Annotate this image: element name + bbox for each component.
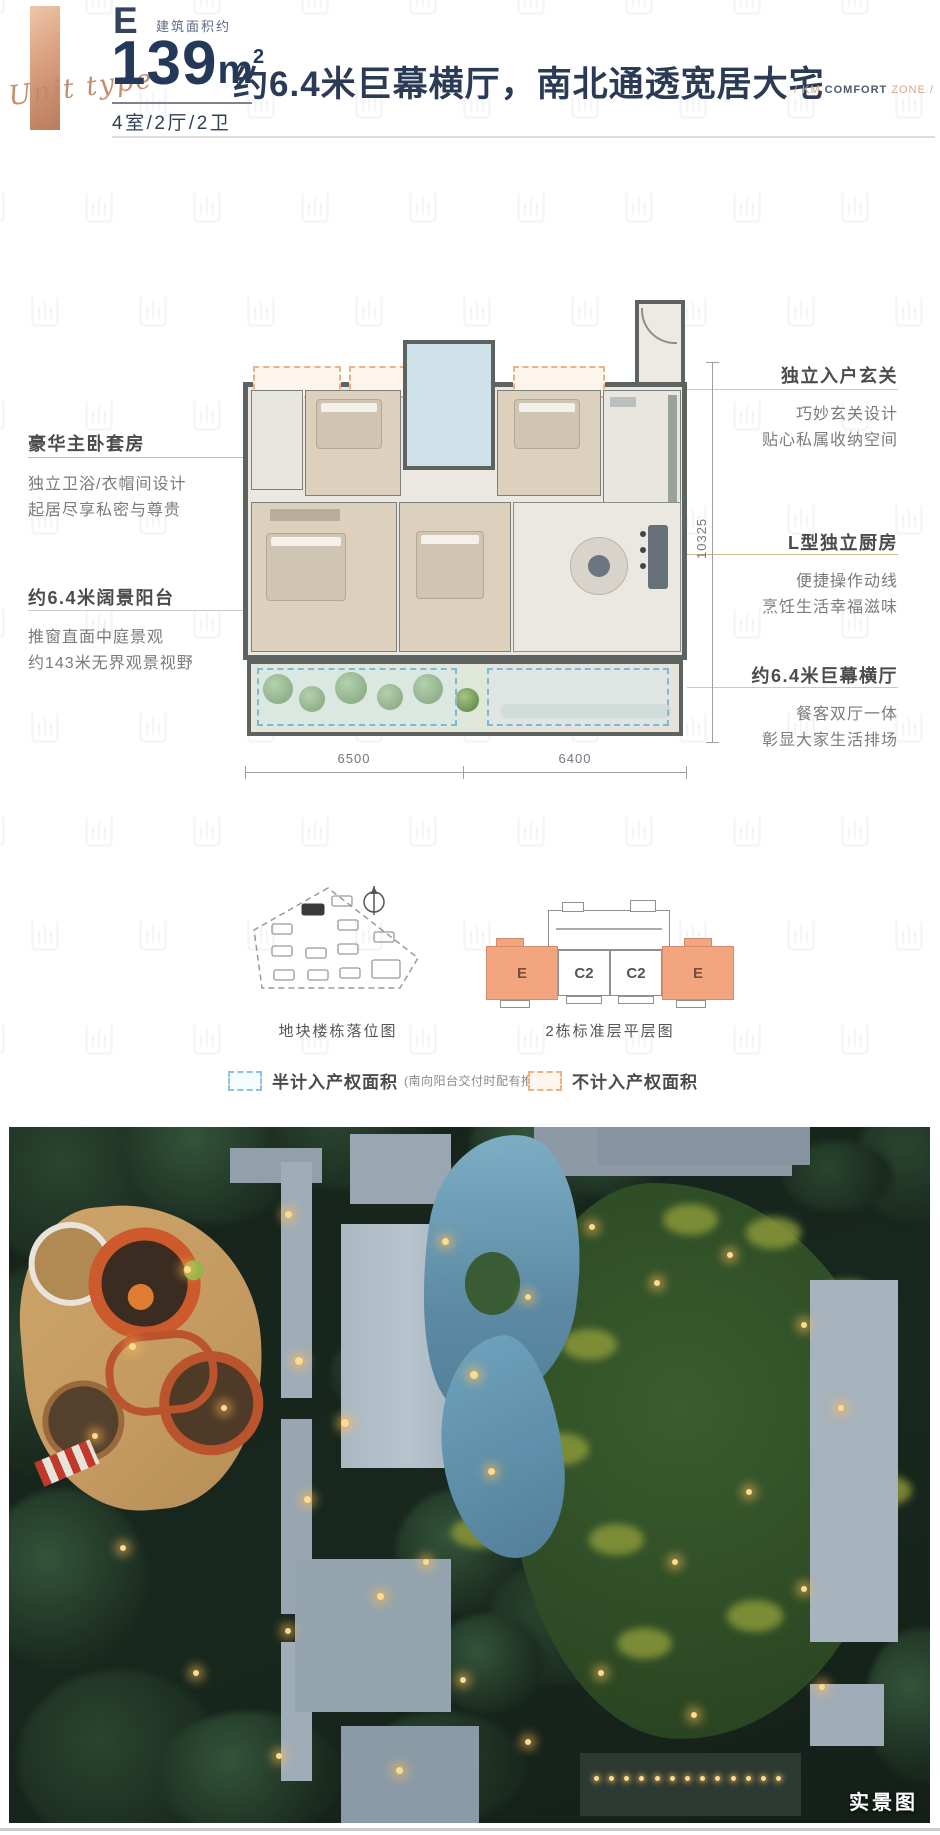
annotation-living-hall: 约6.4米巨幕横厅 餐客双厅一体 彰显大家生活排场: [668, 662, 898, 754]
room-bedroom-3: [497, 390, 601, 496]
unit-label: E: [517, 965, 527, 982]
logo-glyph: [0, 188, 12, 230]
logo-glyph: [888, 916, 930, 958]
unit-cell-C2-left: C2: [558, 950, 610, 996]
bottom-rule: [0, 1828, 940, 1831]
logo-glyph: [0, 812, 12, 854]
annotation-line: 餐客双厅一体: [668, 702, 898, 728]
room-bathroom: [251, 390, 303, 490]
logo-glyph: [0, 604, 12, 646]
dimension-width-left: 6500: [304, 751, 404, 766]
tagline-mid: COMFORT: [825, 84, 888, 96]
logo-glyph: [780, 292, 822, 334]
logo-glyph: [510, 188, 552, 230]
dimension-tick: [245, 766, 246, 779]
unit-balcony: [618, 996, 654, 1004]
garden-light: [304, 1496, 311, 1503]
garden-light: [525, 1294, 531, 1300]
lit-window: [746, 1776, 751, 1781]
logo-glyph: [510, 0, 552, 22]
annotation-title: 约6.4米阔景阳台: [28, 584, 194, 610]
lit-window: [594, 1776, 599, 1781]
annotation-line: 起居尽享私密与尊贵: [28, 498, 186, 524]
dimension-height: 10325: [694, 498, 710, 578]
unit-balcony: [676, 1000, 706, 1008]
roof: [598, 1127, 810, 1165]
tree-canopy: [9, 1489, 147, 1670]
logo-glyph: [402, 812, 444, 854]
lit-window: [761, 1776, 766, 1781]
hedge: [663, 1204, 718, 1235]
tagline-right: ZONE /: [887, 84, 934, 96]
logo-glyph: [402, 0, 444, 22]
logo-glyph: [618, 812, 660, 854]
garden-light: [488, 1468, 495, 1475]
rooms-spec: 4室/2厅/2卫: [112, 108, 231, 135]
annotation-title: L型独立厨房: [678, 529, 898, 555]
garden-light: [654, 1280, 660, 1286]
annotation-master-suite: 豪华主卧套房 独立卫浴/衣帽间设计 起居尽享私密与尊贵: [28, 430, 186, 524]
dimension-line-bottom: [245, 772, 687, 773]
core-bump: [630, 900, 656, 912]
plaza: [295, 1559, 452, 1712]
unit-label: E: [693, 965, 703, 982]
hedge: [589, 1524, 644, 1555]
legend-label: 半计入产权面积: [272, 1068, 398, 1093]
garden-light: [801, 1322, 807, 1328]
garden-light: [129, 1343, 136, 1350]
logo-glyph: [24, 708, 66, 750]
logo-glyph: [78, 188, 120, 230]
logo-glyph: [132, 916, 174, 958]
logo-glyph: [834, 188, 876, 230]
dimension-tick: [706, 742, 719, 743]
tree-canopy: [156, 1712, 340, 1823]
standard-floor-diagram: E C2 C2 E: [470, 900, 750, 1020]
logo-glyph: [132, 292, 174, 334]
pool-island: [465, 1252, 520, 1315]
annotation-kitchen: L型独立厨房 便捷操作动线 烹饪生活幸福滋味: [678, 529, 898, 621]
half-counted-area-dashed: [257, 668, 457, 726]
garden-light: [525, 1739, 531, 1745]
garden-light: [285, 1211, 292, 1218]
core-outline: [548, 910, 670, 950]
annotation-line: 烹饪生活幸福滋味: [678, 595, 898, 621]
dimension-tick: [686, 766, 687, 779]
logo-glyph: [78, 1020, 120, 1062]
annotation-title: 豪华主卧套房: [28, 430, 186, 456]
core-line: [556, 928, 662, 930]
garden-light: [672, 1559, 678, 1565]
logo-glyph: [24, 916, 66, 958]
room-master-bedroom: [251, 502, 397, 652]
annotation-title: 独立入户玄关: [678, 362, 898, 388]
unit-balcony: [566, 996, 602, 1004]
logo-glyph: [402, 188, 444, 230]
north-compass-icon: [360, 884, 388, 918]
logo-glyph: [726, 812, 768, 854]
lit-window: [655, 1776, 660, 1781]
main-title: 约6.4米巨幕横厅，南北通透宽居大宅: [233, 56, 825, 107]
unit-label: C2: [574, 965, 593, 982]
playground: [10, 1194, 275, 1520]
logo-glyph: [834, 812, 876, 854]
deck-right: [810, 1280, 897, 1642]
logo-glyph: [726, 0, 768, 22]
legend-swatch-orange: [528, 1071, 562, 1091]
plot-map-caption: 地块楼栋落位图: [253, 1020, 423, 1041]
photo-caption: 实景图: [849, 1786, 918, 1815]
roof: [350, 1134, 451, 1204]
logo-glyph: [0, 1020, 12, 1062]
dimension-line-right: [712, 362, 713, 742]
room-bedroom-4: [399, 502, 511, 652]
terrace: [341, 1726, 479, 1823]
highlighted-building: [302, 904, 324, 915]
core-bump: [562, 902, 584, 912]
logo-glyph: [780, 916, 822, 958]
half-counted-area-dashed: [487, 668, 669, 726]
annotation-balcony: 约6.4米阔景阳台 推窗直面中庭景观 约143米无界观景视野: [28, 584, 194, 677]
unit-cell-E-left: E: [486, 946, 558, 1000]
hedge: [562, 1329, 617, 1360]
lit-window: [670, 1776, 675, 1781]
dimension-tick: [463, 766, 464, 779]
garden-light: [423, 1559, 429, 1565]
floorplan-drawing: [243, 296, 687, 748]
stair-core: [403, 340, 495, 470]
unit-cell-E-right: E: [662, 946, 734, 1000]
annotation-foyer: 独立入户玄关 巧妙玄关设计 贴心私属收纳空间: [678, 362, 898, 454]
lit-window: [624, 1776, 629, 1781]
logo-glyph: [294, 188, 336, 230]
garden-light: [120, 1545, 126, 1551]
garden-light: [295, 1357, 303, 1365]
unit-cell-C2-right: C2: [610, 950, 662, 996]
plot-location-map: [250, 882, 425, 1017]
garden-light: [193, 1670, 199, 1676]
logo-glyph: [726, 1020, 768, 1062]
legend-swatch-blue: [228, 1071, 262, 1091]
logo-glyph: [186, 188, 228, 230]
logo-glyph: [186, 396, 228, 438]
logo-glyph: [726, 188, 768, 230]
logo-glyph: [618, 0, 660, 22]
logo-glyph: [132, 708, 174, 750]
leader-line: [687, 389, 898, 390]
logo-glyph: [78, 812, 120, 854]
lit-window: [700, 1776, 705, 1781]
garden-light: [746, 1489, 752, 1495]
unit-balcony: [500, 1000, 530, 1008]
leader-line: [28, 610, 243, 611]
legend-half-counted: 半计入产权面积 (南向阳台交付时配有推拉门): [228, 1068, 563, 1093]
annotation-line: 巧妙玄关设计: [678, 402, 898, 428]
logo-glyph: [294, 812, 336, 854]
logo-glyph: [0, 0, 12, 22]
leader-line: [687, 687, 898, 688]
logo-glyph: [510, 812, 552, 854]
copper-accent-bar: [30, 6, 60, 130]
logo-glyph: [834, 1020, 876, 1062]
tagline-left: / KM: [794, 84, 825, 96]
logo-glyph: [888, 292, 930, 334]
annotation-line: 约143米无界观景视野: [28, 651, 194, 677]
legend-label: 不计入产权面积: [572, 1068, 698, 1093]
annotation-line: 彰显大家生活排场: [668, 728, 898, 754]
floor-diagram-caption: 2栋标准层平层图: [515, 1020, 705, 1041]
annotation-line: 独立卫浴/衣帽间设计: [28, 472, 186, 498]
header-divider: [112, 136, 935, 138]
hedge: [746, 1217, 801, 1248]
area-underline: [112, 102, 252, 104]
logo-glyph: [834, 0, 876, 22]
legend-not-counted: 不计入产权面积: [528, 1068, 698, 1093]
unit-label: C2: [626, 965, 645, 982]
room-living-dining: [513, 502, 681, 652]
lit-window: [731, 1776, 736, 1781]
pavilion: [810, 1684, 884, 1747]
page: Unit type E 建筑面积约 139 m 2 4室/2厅/2卫 约6.4米…: [0, 0, 940, 1835]
annotation-title: 约6.4米巨幕横厅: [668, 662, 898, 688]
aerial-photo: 实景图: [9, 1127, 930, 1823]
annotation-line: 贴心私属收纳空间: [678, 428, 898, 454]
logo-glyph: [186, 812, 228, 854]
logo-glyph: [294, 0, 336, 22]
lit-window: [776, 1776, 781, 1781]
building-bottom: [580, 1753, 801, 1816]
annotation-line: 便捷操作动线: [678, 569, 898, 595]
dimension-width-right: 6400: [525, 751, 625, 766]
logo-glyph: [0, 396, 12, 438]
logo-glyph: [186, 1020, 228, 1062]
garden-light: [691, 1712, 697, 1718]
garden-light: [341, 1419, 349, 1427]
logo-glyph: [618, 188, 660, 230]
area-number: 139: [111, 32, 217, 96]
lit-window: [609, 1776, 614, 1781]
annotation-line: 推窗直面中庭景观: [28, 625, 194, 651]
garden-light: [285, 1628, 291, 1634]
lit-window: [685, 1776, 690, 1781]
dimension-tick: [706, 362, 719, 363]
tagline: / KM COMFORT ZONE /: [794, 84, 934, 96]
hedge: [727, 1600, 782, 1631]
garden-light: [470, 1371, 478, 1379]
room-bedroom-2: [305, 390, 401, 496]
logo-glyph: [24, 292, 66, 334]
